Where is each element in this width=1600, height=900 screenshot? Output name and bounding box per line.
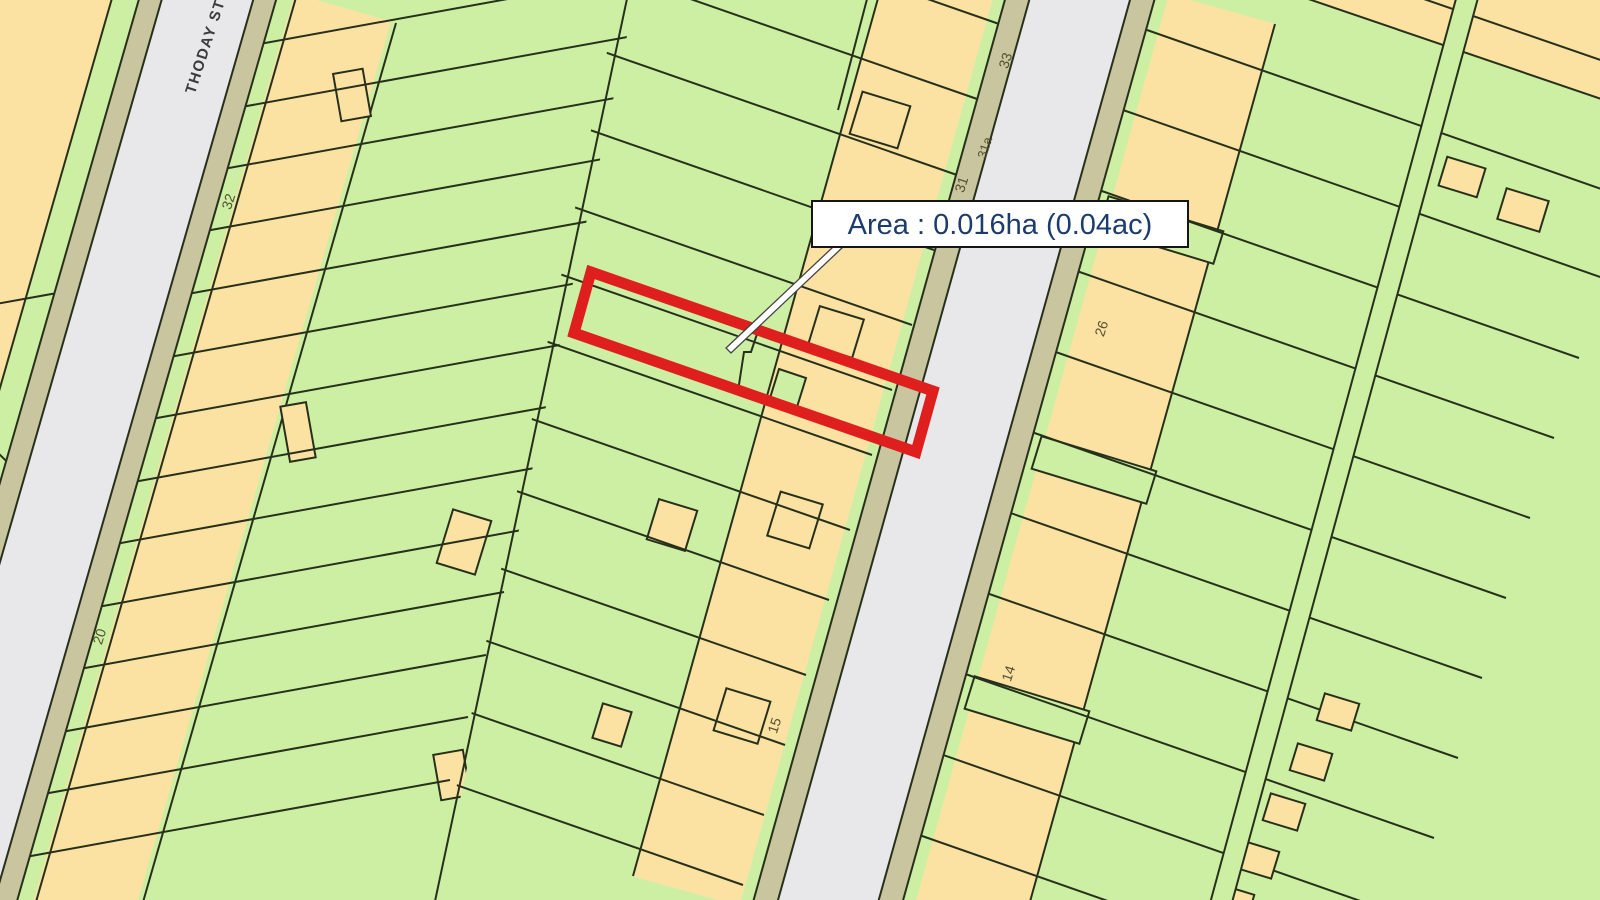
area-label-text: Area : 0.016ha (0.04ac)	[848, 209, 1153, 241]
map-viewport[interactable]: Area : 0.016ha (0.04ac) THODAY STREET 32…	[0, 0, 1600, 900]
area-label: Area : 0.016ha (0.04ac)	[812, 201, 1188, 247]
map-canvas[interactable]: Area : 0.016ha (0.04ac) THODAY STREET 32…	[0, 0, 1600, 900]
